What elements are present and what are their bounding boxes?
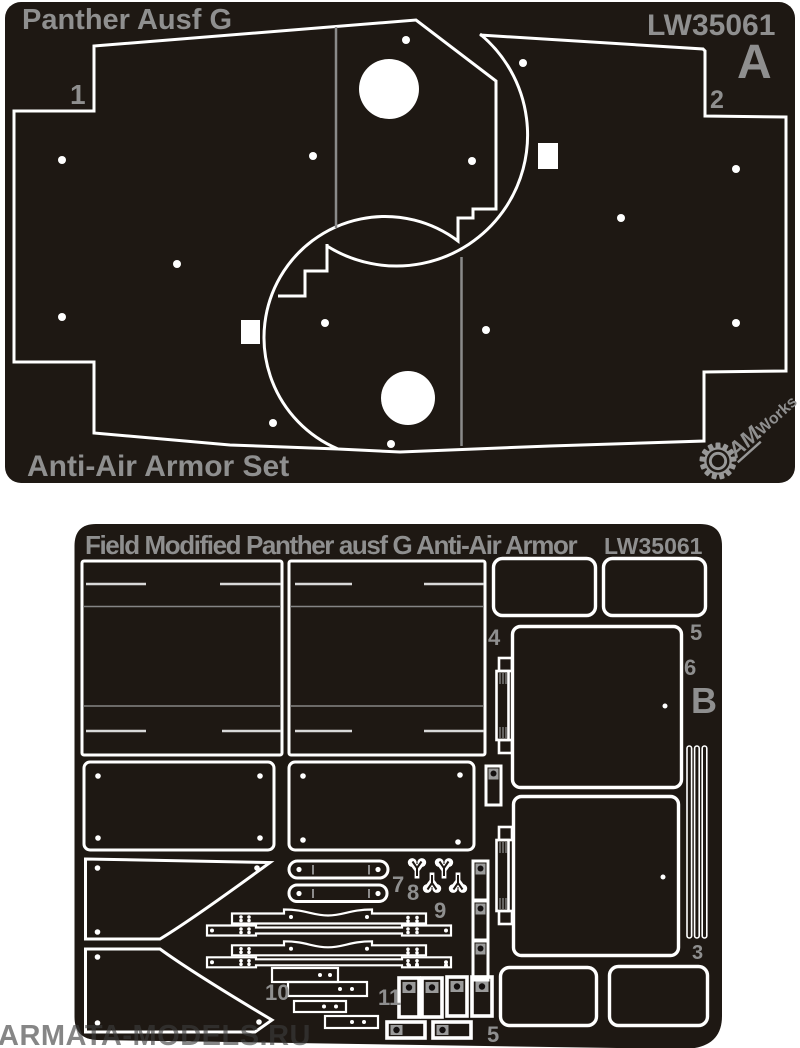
svg-text:6: 6 [684,655,696,680]
svg-text:ARMATA-MODELS.RU: ARMATA-MODELS.RU [0,1020,311,1048]
svg-text:11: 11 [378,985,401,1010]
svg-text:9: 9 [434,898,446,923]
svg-text:Panther Ausf G: Panther Ausf G [22,4,232,36]
svg-text:A: A [737,36,772,89]
svg-text:1: 1 [70,79,86,110]
svg-text:Field Modified Panther ausf G: Field Modified Panther ausf G Anti-Air A… [85,530,577,560]
svg-text:7: 7 [392,872,404,897]
svg-text:10: 10 [265,980,289,1005]
svg-text:4: 4 [488,625,501,650]
svg-text:Anti-Air Armor Set: Anti-Air Armor Set [27,450,289,483]
svg-text:3: 3 [692,942,703,964]
svg-text:B: B [691,680,717,721]
svg-text:2: 2 [710,86,724,114]
svg-text:5: 5 [690,620,702,645]
svg-text:8: 8 [407,880,419,905]
svg-text:5: 5 [487,1022,499,1047]
svg-text:LW35061: LW35061 [604,533,703,559]
